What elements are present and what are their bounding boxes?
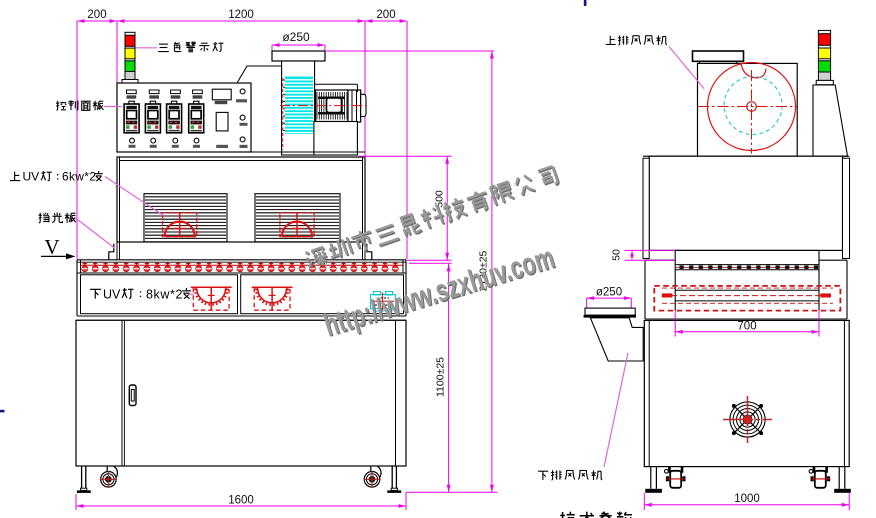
svg-text:200: 200	[376, 9, 395, 21]
svg-text:50: 50	[611, 249, 623, 261]
svg-text:700: 700	[737, 321, 756, 333]
svg-text:UV: UV	[103, 288, 121, 302]
svg-text:ø250: ø250	[282, 30, 310, 44]
svg-text:8kw*2: 8kw*2	[146, 288, 183, 302]
svg-text:V: V	[44, 235, 59, 259]
svg-text:1100±25: 1100±25	[435, 357, 447, 397]
svg-text:UV: UV	[23, 170, 40, 184]
svg-text:1600: 1600	[228, 495, 254, 507]
svg-text:500: 500	[434, 190, 446, 208]
svg-text:1200: 1200	[228, 9, 254, 21]
svg-text:1000: 1000	[734, 493, 760, 505]
svg-text:200: 200	[87, 9, 106, 21]
svg-text:ø250: ø250	[596, 286, 622, 298]
svg-text:6kw*2: 6kw*2	[62, 170, 96, 184]
